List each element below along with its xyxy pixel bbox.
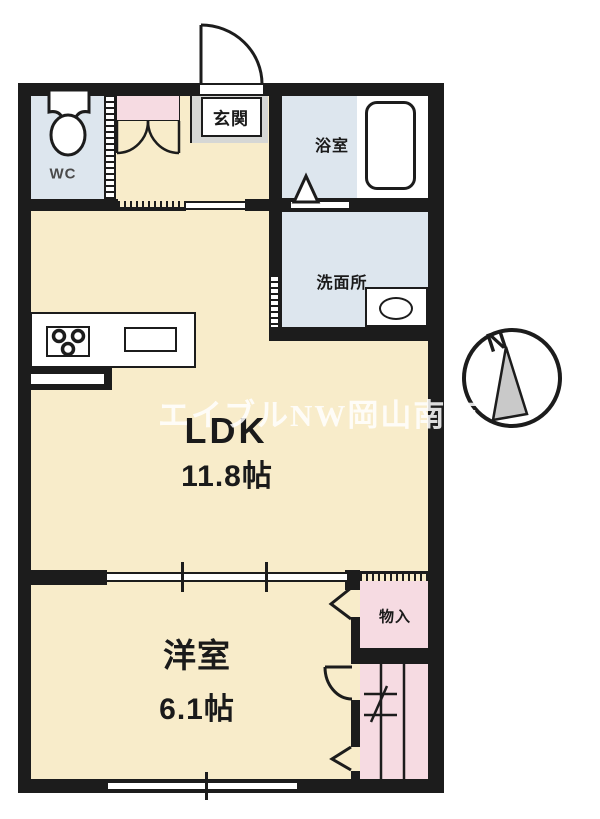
- wc-label: WC: [50, 166, 77, 183]
- washroom-label: 洗面所: [316, 269, 367, 293]
- compass-needle-icon: [493, 347, 527, 420]
- bathroom-door-triangle: [294, 176, 318, 202]
- west-room-label: 洋室: [163, 629, 231, 677]
- stove-burners-icon: [54, 331, 84, 355]
- west-wall-chevron: [332, 747, 351, 770]
- west-room-door-swing: [325, 667, 352, 699]
- ldk-size-label: 11.8帖: [181, 451, 273, 495]
- bathroom-label: 浴室: [315, 132, 349, 156]
- entrance-door-swing: [201, 25, 262, 84]
- closet-double-doors: [117, 121, 179, 153]
- toilet-icon: [49, 90, 89, 155]
- entrance-label: 玄関: [213, 105, 249, 130]
- floorplan-canvas: WC 玄関 浴室 洗面所 LDK 11.8帖 洋室 6.1帖 物入 N エイブル…: [0, 0, 600, 819]
- staircase-icon: [364, 664, 404, 779]
- watermark-text: エイブルNW岡山南店: [158, 390, 479, 435]
- storage-door-chevron: [331, 588, 351, 619]
- storage-label: 物入: [379, 606, 411, 627]
- west-room-size-label: 6.1帖: [159, 684, 235, 728]
